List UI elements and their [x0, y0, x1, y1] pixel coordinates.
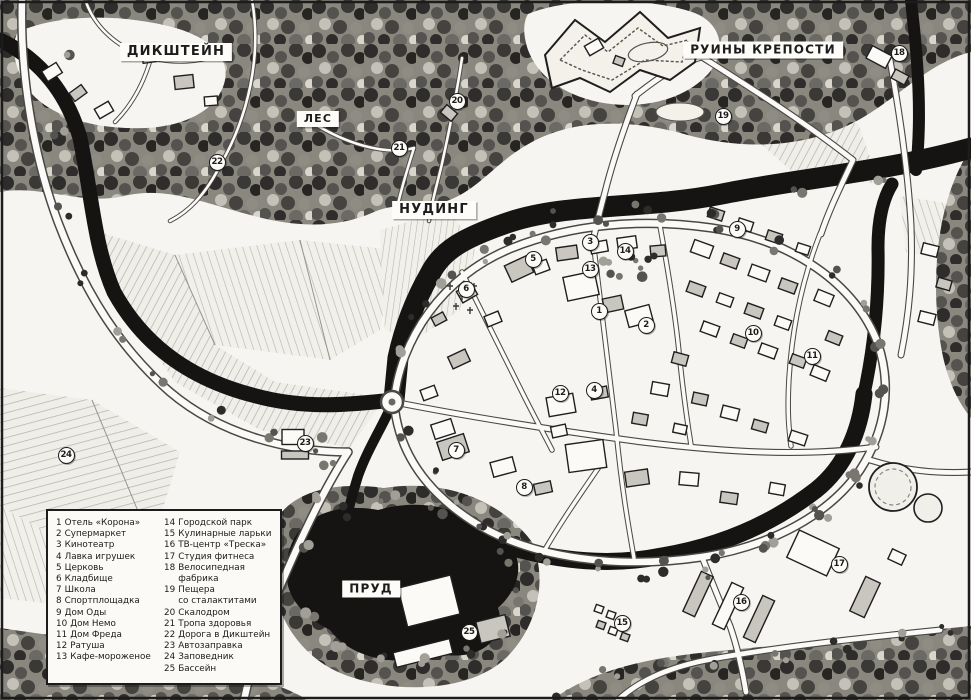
legend-item-label: Кладбище [65, 574, 113, 585]
legend-item-number: 16 [164, 540, 175, 551]
legend-item-14: 14Городской парк [164, 518, 274, 529]
legend-item-10: 10Дом Немо [56, 619, 158, 630]
legend-item-number: 22 [164, 630, 175, 641]
legend-item-label: Дом Фреда [70, 630, 122, 641]
legend-item-label: Лавка игрушек [65, 552, 136, 563]
legend-item-25: 25Бассейн [164, 664, 274, 675]
legend-item-22: 22Дорога в Дикштейн [164, 630, 274, 641]
legend-item-number: 10 [56, 619, 67, 630]
legend-item-19: 19Пещера со сталактитами [164, 585, 274, 607]
legend-item-number: 15 [164, 529, 175, 540]
legend-item-number: 19 [164, 585, 175, 607]
legend-item-17: 17Студия фитнеса [164, 552, 274, 563]
legend-item-7: 7Школа [56, 585, 158, 596]
legend-item-4: 4Лавка игрушек [56, 552, 158, 563]
legend-item-label: Заповедник [178, 652, 234, 663]
legend-item-label: Отель «Корона» [65, 518, 141, 529]
legend-item-number: 21 [164, 619, 175, 630]
legend-item-15: 15Кулинарные ларьки [164, 529, 274, 540]
legend-item-number: 11 [56, 630, 67, 641]
legend-item-12: 12Ратуша [56, 641, 158, 652]
legend-item-label: Кинотеатр [65, 540, 115, 551]
legend-item-24: 24Заповедник [164, 652, 274, 663]
legend-item-21: 21Тропа здоровья [164, 619, 274, 630]
cave-clearing [656, 103, 704, 121]
legend-item-label: Супермаркет [65, 529, 127, 540]
legend-item-2: 2Супермаркет [56, 529, 158, 540]
legend-item-label: Бассейн [178, 664, 216, 675]
legend-item-number: 17 [164, 552, 175, 563]
legend-item-label: Церковь [65, 563, 104, 574]
legend-item-label: Дорога в Дикштейн [178, 630, 270, 641]
legend-item-number: 6 [56, 574, 62, 585]
legend-item-number: 2 [56, 529, 62, 540]
legend-column-1: 1Отель «Корона»2Супермаркет3Кинотеатр4Ла… [56, 518, 158, 675]
legend-item-23: 23Автозаправка [164, 641, 274, 652]
legend-item-number: 3 [56, 540, 62, 551]
legend-item-label: Ратуша [70, 641, 104, 652]
legend-item-number: 14 [164, 518, 175, 529]
legend-item-1: 1Отель «Корона» [56, 518, 158, 529]
legend-item-label: Кулинарные ларьки [178, 529, 271, 540]
legend-item-number: 12 [56, 641, 67, 652]
legend-item-number: 25 [164, 664, 175, 675]
legend-item-16: 16ТВ-центр «Треска» [164, 540, 274, 551]
legend-item-label: Студия фитнеса [178, 552, 254, 563]
roundabout [381, 391, 403, 413]
legend-item-label: Городской парк [178, 518, 252, 529]
legend-item-8: 8Спортплощадка [56, 596, 158, 607]
legend-item-number: 5 [56, 563, 62, 574]
legend-item-number: 20 [164, 608, 175, 619]
legend-item-13: 13Кафе-мороженое [56, 652, 158, 663]
legend-item-label: Школа [65, 585, 96, 596]
legend-item-number: 24 [164, 652, 175, 663]
legend-item-3: 3Кинотеатр [56, 540, 158, 551]
legend-item-number: 23 [164, 641, 175, 652]
legend-item-5: 5Церковь [56, 563, 158, 574]
map-canvas: ДИКШТЕЙНРУИНЫ КРЕПОСТИЛЕСНУДИНГПРУД 1234… [0, 0, 971, 700]
legend-item-18: 18Велосипедная фабрика [164, 563, 274, 585]
legend-item-label: Спортплощадка [65, 596, 140, 607]
legend-item-number: 8 [56, 596, 62, 607]
legend-item-label: Велосипедная фабрика [178, 563, 274, 585]
legend-item-number: 13 [56, 652, 67, 663]
legend-item-label: Дом Немо [70, 619, 116, 630]
legend-item-label: Скалодром [178, 608, 230, 619]
legend-item-11: 11Дом Фреда [56, 630, 158, 641]
legend-item-label: ТВ-центр «Треска» [178, 540, 266, 551]
legend-column-2: 14Городской парк15Кулинарные ларьки16ТВ-… [164, 518, 274, 675]
legend-item-number: 1 [56, 518, 62, 529]
legend-item-20: 20Скалодром [164, 608, 274, 619]
legend-item-number: 18 [164, 563, 175, 585]
legend-item-6: 6Кладбище [56, 574, 158, 585]
legend-item-label: Автозаправка [178, 641, 242, 652]
legend-item-9: 9Дом Оды [56, 608, 158, 619]
legend-item-label: Пещера со сталактитами [178, 585, 256, 607]
map-legend: 1Отель «Корона»2Супермаркет3Кинотеатр4Ла… [46, 509, 282, 685]
legend-item-number: 4 [56, 552, 62, 563]
legend-item-label: Дом Оды [65, 608, 107, 619]
legend-item-label: Тропа здоровья [178, 619, 251, 630]
legend-item-label: Кафе-мороженое [70, 652, 151, 663]
legend-item-number: 7 [56, 585, 62, 596]
legend-item-number: 9 [56, 608, 62, 619]
